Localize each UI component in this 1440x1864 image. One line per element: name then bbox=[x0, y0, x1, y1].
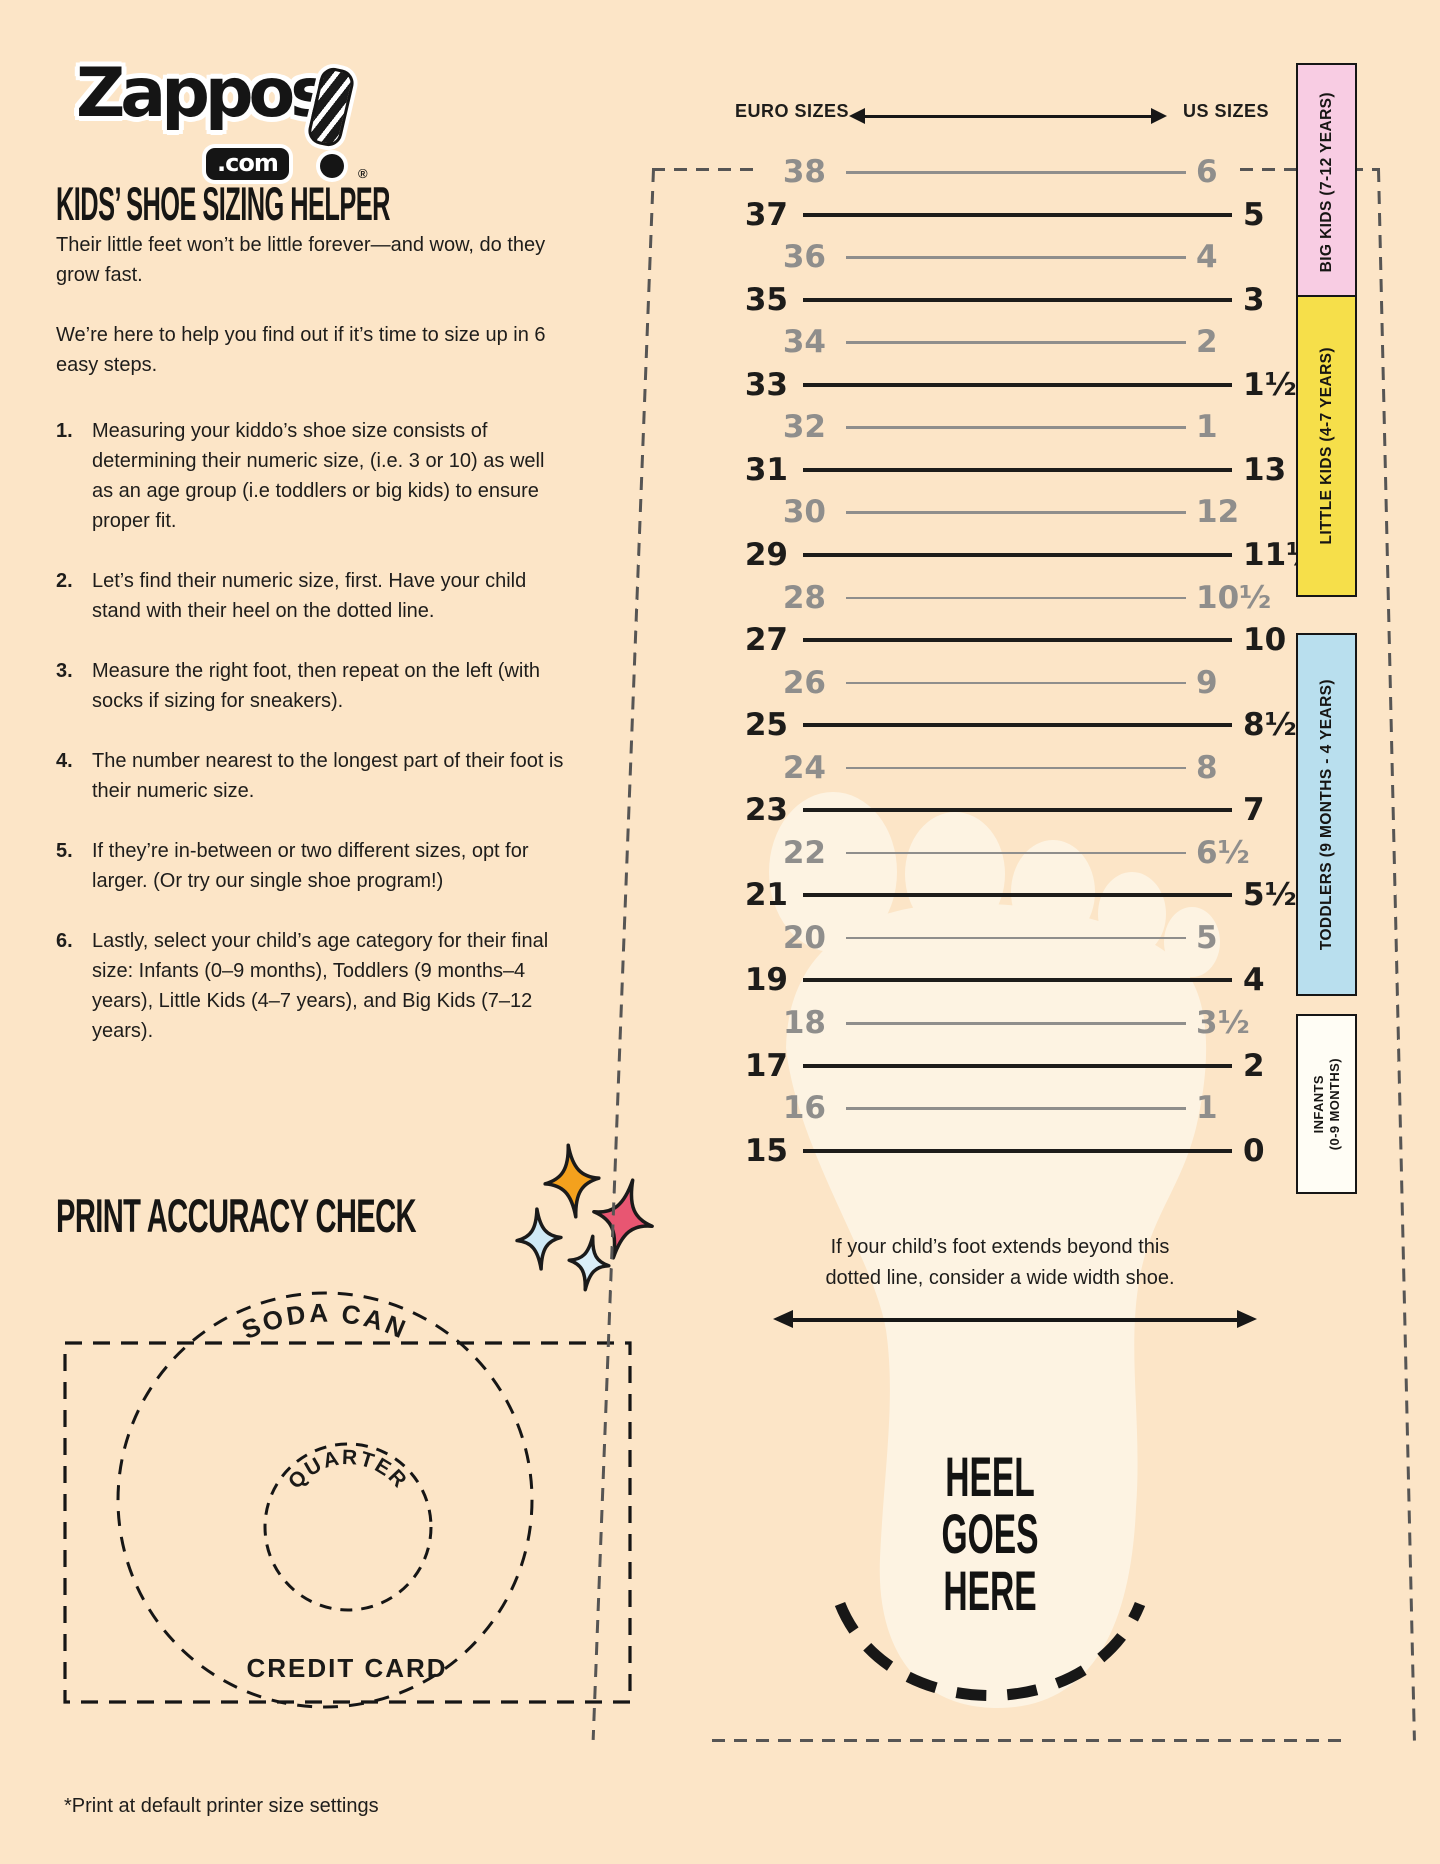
age-band-label: INFANTS bbox=[1311, 1075, 1326, 1133]
kids-shoe-sizing-sheet: Zappos .com ® KIDS’ SHOE SIZING HELPER T… bbox=[0, 0, 1440, 1864]
age-band-sublabel: (0-9 MONTHS) bbox=[1327, 1058, 1342, 1150]
age-band-label: LITTLE KIDS (4-7 YEARS) bbox=[1318, 347, 1336, 545]
age-band: INFANTS(0-9 MONTHS) bbox=[1296, 1014, 1357, 1194]
age-band-label: TODDLERS (9 MONTHS - 4 YEARS) bbox=[1318, 679, 1336, 950]
age-band: TODDLERS (9 MONTHS - 4 YEARS) bbox=[1296, 633, 1357, 996]
age-band: BIG KIDS (7-12 YEARS) bbox=[1296, 63, 1357, 302]
age-bands: BIG KIDS (7-12 YEARS)LITTLE KIDS (4-7 YE… bbox=[0, 0, 1440, 1864]
age-band: LITTLE KIDS (4-7 YEARS) bbox=[1296, 295, 1357, 597]
age-band-label: BIG KIDS (7-12 YEARS) bbox=[1318, 92, 1336, 272]
